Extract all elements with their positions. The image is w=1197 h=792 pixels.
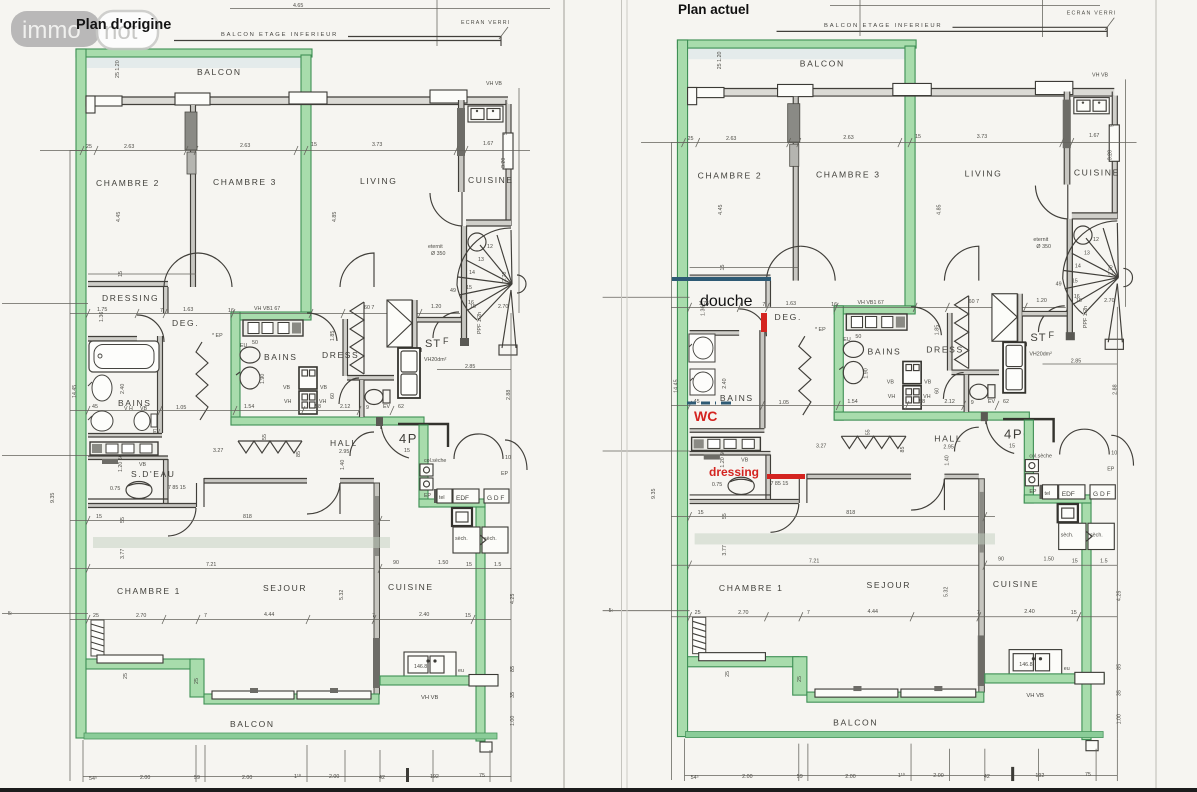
svg-text:immo: immo	[22, 17, 81, 44]
svg-text:VB: VB	[140, 406, 148, 412]
svg-text:Plan actuel: Plan actuel	[678, 2, 749, 17]
svg-text:dressing: dressing	[709, 465, 759, 479]
svg-text:Plan d'origine: Plan d'origine	[76, 17, 171, 33]
svg-text:V H: V H	[124, 406, 133, 412]
svg-text:DRESSING: DRESSING	[102, 293, 159, 303]
svg-text:EV: EV	[153, 429, 161, 435]
svg-text:douche: douche	[700, 293, 753, 310]
svg-text:S.D'EAU: S.D'EAU	[131, 469, 175, 479]
svg-text:WC: WC	[694, 408, 717, 424]
